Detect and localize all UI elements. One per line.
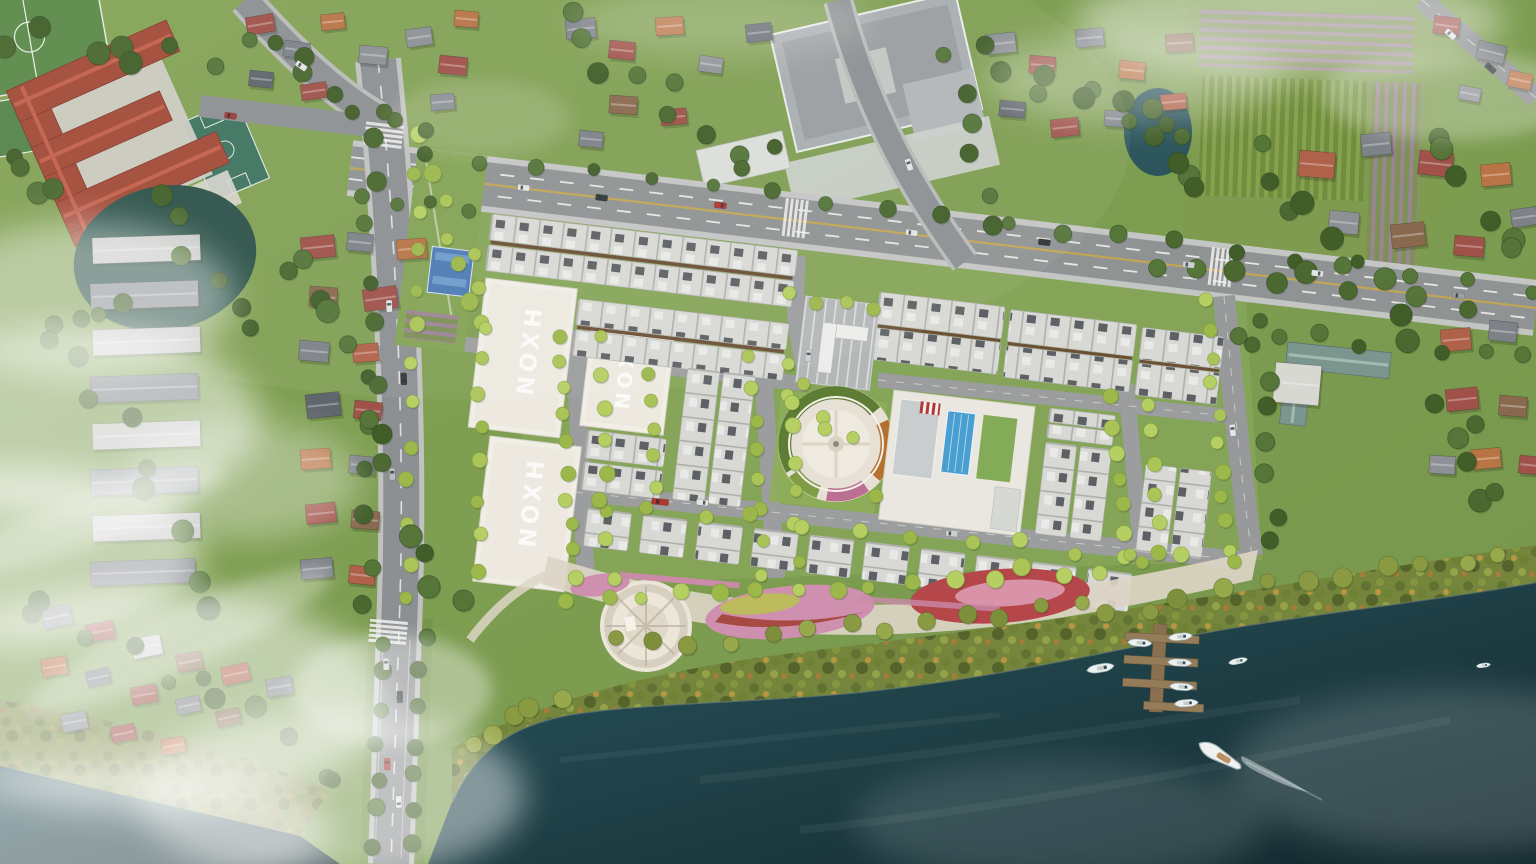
cloud xyxy=(292,635,492,745)
cloud xyxy=(390,80,570,156)
aerial-render: Aerial rendering of a riverside township… xyxy=(0,0,1536,864)
cloud xyxy=(985,33,1285,123)
amenity-clubhouse xyxy=(879,390,1035,536)
clubhouse-2 xyxy=(990,487,1021,532)
